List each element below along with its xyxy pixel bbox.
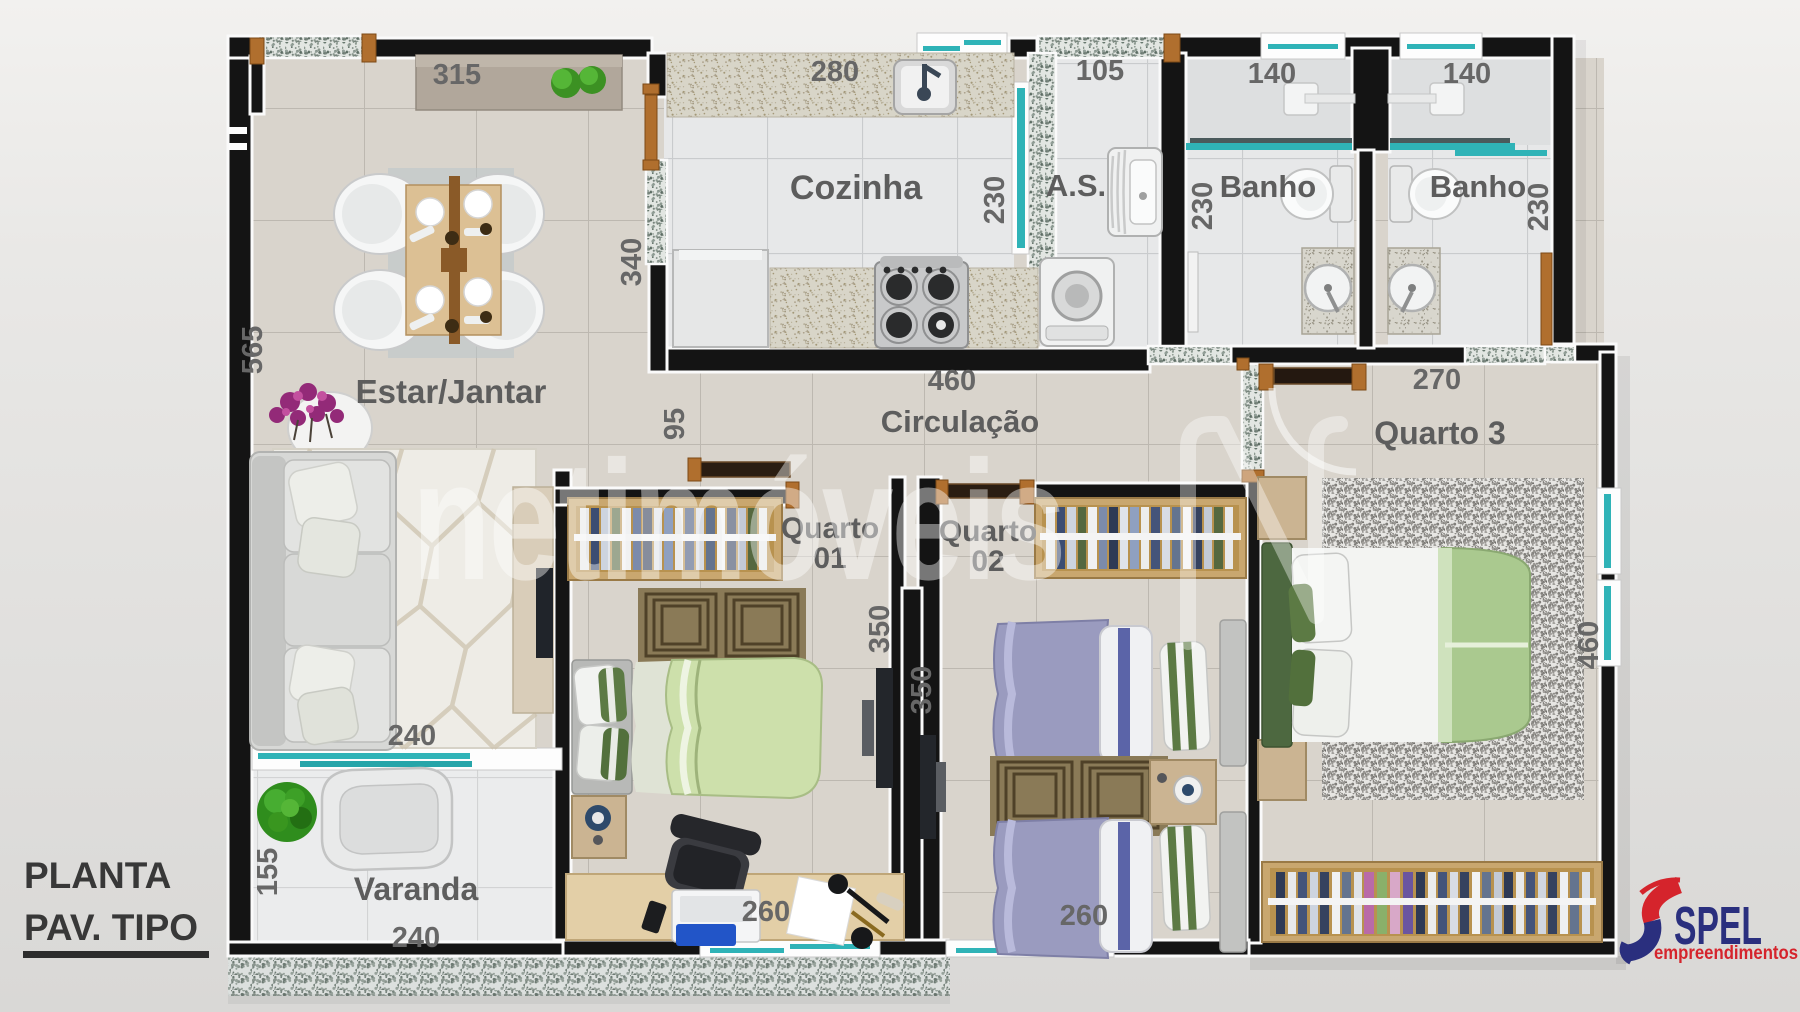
svg-text:280: 280: [811, 56, 859, 88]
svg-text:Estar/Jantar: Estar/Jantar: [356, 373, 547, 410]
svg-text:260: 260: [742, 896, 790, 928]
svg-text:netimóveis: netimóveis: [412, 425, 1064, 615]
svg-text:315: 315: [433, 59, 481, 91]
svg-text:240: 240: [392, 922, 440, 954]
svg-text:Banho: Banho: [1220, 169, 1316, 204]
svg-text:230: 230: [1187, 182, 1219, 230]
svg-text:105: 105: [1076, 55, 1124, 87]
svg-text:270: 270: [1413, 364, 1461, 396]
svg-text:260: 260: [1060, 900, 1108, 932]
svg-text:A.S.: A.S.: [1046, 168, 1106, 203]
svg-text:Banho: Banho: [1430, 169, 1526, 204]
svg-text:Cozinha: Cozinha: [790, 169, 923, 207]
svg-text:PAV. TIPO: PAV. TIPO: [24, 907, 198, 948]
svg-text:Varanda: Varanda: [354, 871, 479, 907]
svg-text:460: 460: [1573, 621, 1605, 669]
svg-text:empreendimentos: empreendimentos: [1654, 943, 1798, 964]
svg-text:230: 230: [1523, 183, 1555, 231]
svg-text:350: 350: [906, 666, 938, 714]
svg-text:565: 565: [237, 326, 269, 374]
svg-text:230: 230: [979, 176, 1011, 224]
svg-text:140: 140: [1248, 58, 1296, 90]
svg-text:460: 460: [928, 365, 976, 397]
svg-text:140: 140: [1443, 58, 1491, 90]
svg-text:340: 340: [616, 238, 648, 286]
svg-text:Quarto 3: Quarto 3: [1374, 415, 1506, 451]
svg-text:PLANTA: PLANTA: [24, 855, 171, 896]
svg-text:240: 240: [388, 720, 436, 752]
svg-text:155: 155: [252, 848, 284, 896]
